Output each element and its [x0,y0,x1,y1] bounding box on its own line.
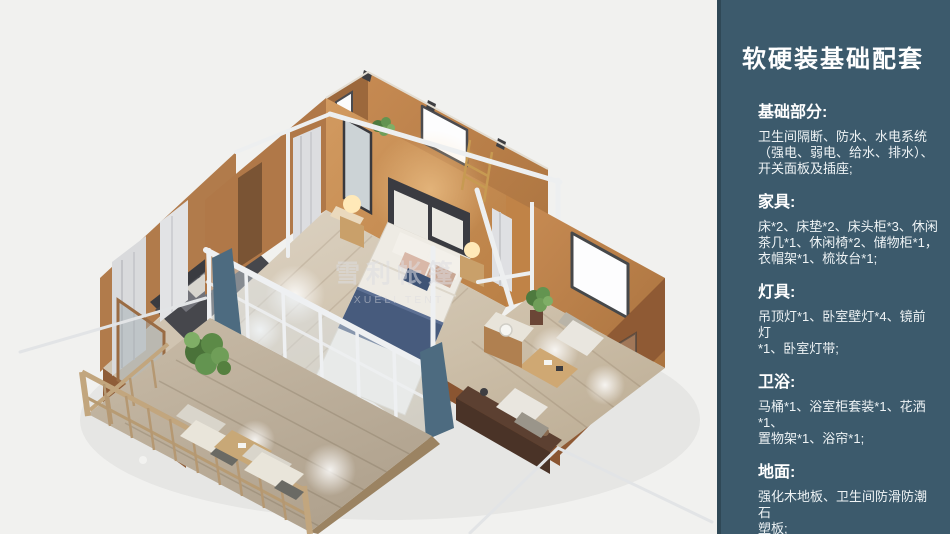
spec-section-flooring: 地面: 强化木地板、卫生间防滑防潮石 塑板; [742,463,938,534]
panel-title: 软硬装基础配套 [742,45,938,75]
floorplan-render: 雪利帐篷 XUELI TENT [0,0,717,534]
section-heading: 地面: [758,463,938,483]
section-heading: 家具: [758,193,938,213]
svg-text:XUELI TENT: XUELI TENT [354,294,445,306]
section-heading: 卫浴: [758,373,938,393]
section-heading: 基础部分: [758,103,938,123]
spec-panel: 软硬装基础配套 基础部分: 卫生间隔断、防水、水电系统 （强电、弱电、给水、排水… [717,0,950,534]
slide: 雪利帐篷 XUELI TENT 软硬装基础配套 基础部分: 卫生间隔断、防水、水… [0,0,950,534]
passage-opening [238,162,262,268]
section-heading: 灯具: [758,283,938,303]
spec-section-lighting: 灯具: 吊顶灯*1、卧室壁灯*4、镜前灯 *1、卧室灯带; [742,283,938,357]
spec-section-basics: 基础部分: 卫生间隔断、防水、水电系统 （强电、弱电、给水、排水）、 开关面板及… [742,103,938,177]
section-body: 马桶*1、浴室柜套装*1、花洒*1、 置物架*1、浴帘*1; [758,399,938,447]
spec-section-bathroom: 卫浴: 马桶*1、浴室柜套装*1、花洒*1、 置物架*1、浴帘*1; [742,373,938,447]
section-body: 床*2、床垫*2、床头柜*3、休闲 茶几*1、休闲椅*2、储物柜*1， 衣帽架*… [758,219,938,267]
section-body: 卫生间隔断、防水、水电系统 （强电、弱电、给水、排水）、 开关面板及插座; [758,129,938,177]
spec-section-furniture: 家具: 床*2、床垫*2、床头柜*3、休闲 茶几*1、休闲椅*2、储物柜*1， … [742,193,938,267]
section-body: 吊顶灯*1、卧室壁灯*4、镜前灯 *1、卧室灯带; [758,309,938,357]
watermark: 雪利帐篷 XUELI TENT [335,259,459,306]
section-body: 强化木地板、卫生间防滑防潮石 塑板; [758,489,938,534]
svg-text:雪利帐篷: 雪利帐篷 [335,259,459,288]
